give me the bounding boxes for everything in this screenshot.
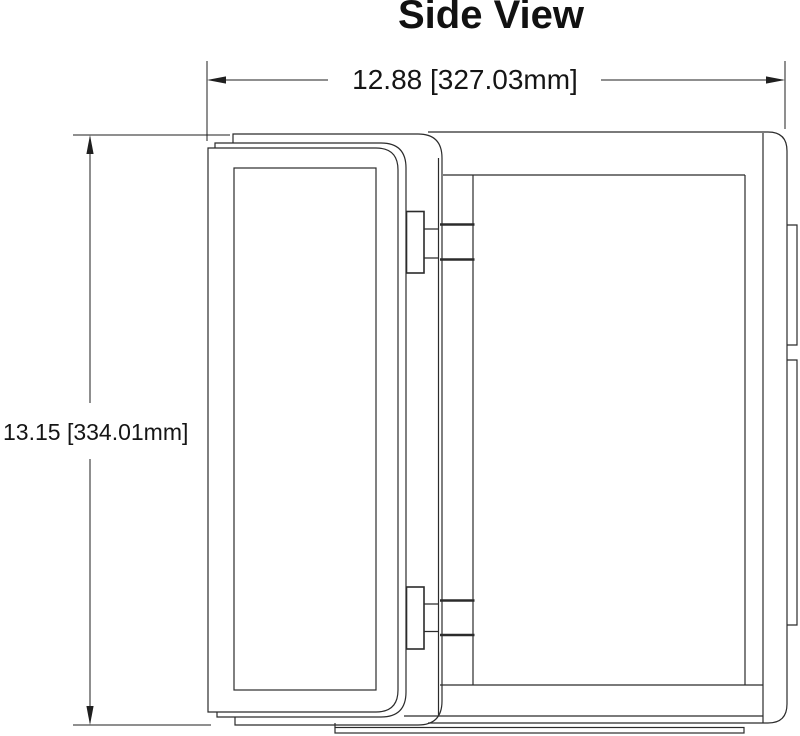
width-dimension-label: 12.88 [327.03mm] (352, 64, 578, 95)
hinge-top-knuckle (407, 212, 425, 274)
hinge-bottom-knuckle (407, 587, 425, 649)
drawing-title: Side View (398, 0, 584, 38)
door-inner-panel (234, 168, 376, 690)
hinge-bottom-connectors (424, 604, 439, 632)
hinge-top-pin-lines (440, 225, 475, 260)
hinge-top-connectors (424, 229, 439, 258)
width-arrow-right (766, 76, 785, 83)
width-dimension: 12.88 [327.03mm] (207, 61, 785, 141)
door-front-face (208, 148, 398, 712)
hinge-top (407, 212, 475, 274)
door-back-flange (233, 134, 442, 725)
height-arrow-up (86, 135, 93, 154)
enclosure-body (335, 132, 797, 733)
height-dimension: 13.15 [334.01mm] (3, 135, 230, 725)
technical-drawing: 12.88 [327.03mm] 13.15 [334.01mm] (0, 0, 800, 736)
drawing-canvas: 12.88 [327.03mm] 13.15 [334.01mm] Side V… (0, 0, 800, 736)
door-middle-profile (215, 143, 406, 717)
height-arrow-down (86, 706, 93, 725)
mounting-bracket-bottom (787, 360, 797, 625)
width-arrow-left (207, 76, 226, 83)
hinge-bottom-pin-lines (440, 601, 475, 636)
height-dimension-label: 13.15 [334.01mm] (3, 419, 188, 445)
mounting-bracket-top (787, 225, 797, 345)
mounting-foot (335, 728, 744, 734)
body-outline (428, 132, 787, 723)
hinge-bottom (407, 587, 475, 649)
